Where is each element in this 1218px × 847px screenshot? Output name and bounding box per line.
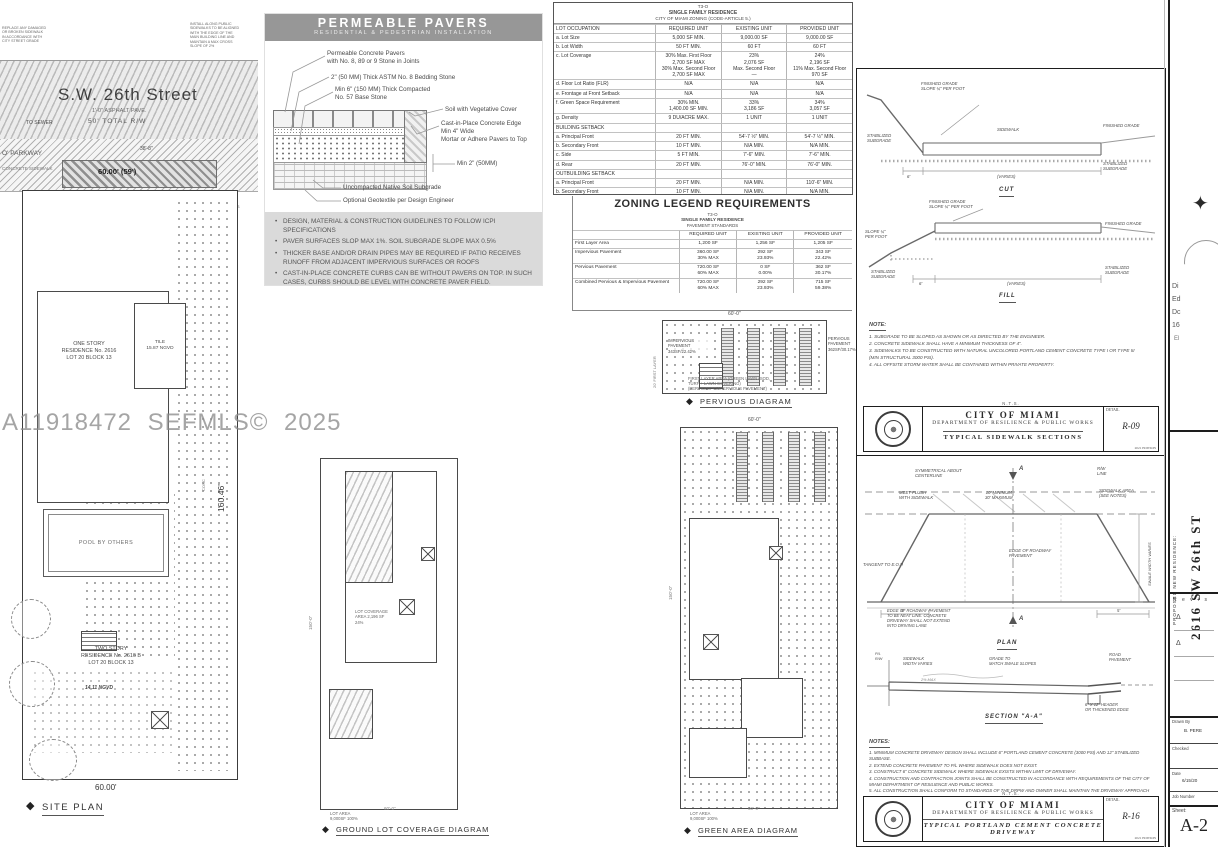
revision-triangle-icon: Δ — [1176, 614, 1181, 623]
revision-rule — [1174, 680, 1214, 681]
pavers-bullet: CAST-IN-PLACE CONCRETE CURBS CAN BE WITH… — [275, 270, 532, 287]
section-pct: 2% MAX — [921, 678, 936, 683]
footprint-ext — [741, 678, 803, 738]
title-block-detail: DETAIL R-16 2021 EDITION — [1103, 797, 1158, 841]
required-cell: N/A — [655, 79, 721, 88]
provided-cell: N/A — [786, 79, 852, 88]
note-item: 2. CONCRETE SIDEWALK SHALL HAVE A MINIMU… — [869, 341, 1153, 348]
row-name: d. Rear — [554, 160, 655, 169]
row-name — [573, 230, 679, 239]
section-sidewalk-width: SIDEWALK WIDTH VARIES — [903, 656, 932, 666]
plan-neat-line-note: EDGE OF ROADWAY PAVEMENT TO BE NEAT LINE… — [887, 608, 950, 628]
existing-cell: 76'-0" MIN. — [721, 160, 787, 169]
required-cell: N/A — [655, 89, 721, 98]
driveway-strip — [62, 160, 217, 188]
dim-38: 38'-8" — [140, 146, 153, 152]
note-item: 3. SIDEWALKS TO BE CONSTRUCTED WITH NATU… — [869, 348, 1153, 362]
existing-cell: 7'-6" MIN. — [721, 150, 787, 159]
pervious-note: FIRST LAYER AREA (GREEN LAWN (SOD, TURF … — [688, 376, 770, 391]
existing-cell — [721, 123, 787, 132]
provided-cell: 362 SF 30.17% — [793, 263, 852, 278]
green-area-diagram — [680, 427, 838, 809]
parkway-label: O' PARKWAY — [2, 150, 42, 158]
cut-finished-grade: FINISHED GRADE — [1103, 123, 1140, 128]
department-name: DEPARTMENT OF RESILIENCE & PUBLIC WORKS — [923, 810, 1103, 816]
row-name: OUTBUILDING SETBACK — [554, 169, 655, 178]
section-pl: P/L R/W — [875, 652, 882, 661]
footprint-small — [689, 728, 747, 778]
title-block-center: CITY OF MIAMI DEPARTMENT OF RESILIENCE &… — [923, 407, 1103, 451]
city-name: CITY OF MIAMI — [923, 800, 1103, 810]
project-street-vertical: 2616 SW 26th ST — [1188, 440, 1204, 640]
architect-seal-icon — [1184, 240, 1218, 284]
footprint-hatch — [345, 471, 393, 583]
provided-cell: 76'-0" MIN. — [786, 160, 852, 169]
sidebar-divider — [1170, 805, 1218, 807]
existing-cell: 292 SF 23.93% — [736, 278, 793, 293]
row-name: Impervious Pavement — [573, 248, 679, 263]
provided-cell: 24% 2,196 SF 11% Max. Second Floor 970 S… — [786, 51, 852, 79]
pervious-bar — [799, 328, 812, 386]
section-header-label: 6" X 12" HEADER OR THICKENED EDGE — [1085, 702, 1129, 712]
detail-name: TYPICAL SIDEWALK SECTIONS — [943, 431, 1082, 441]
plan-symmetrical: SYMMETRICAL ABOUT CENTERLINE — [915, 468, 962, 479]
existing-cell: N/A MIN. — [721, 141, 787, 150]
green-bar — [762, 432, 774, 502]
pervious-bar — [773, 328, 786, 386]
plan-tangent: TANGENT TO E.O.P. — [863, 562, 904, 567]
green-bar — [736, 432, 748, 502]
plan-meet-flush: MEET FLUSH WITH SIDEWALK — [899, 490, 933, 501]
equipment-pad — [151, 711, 169, 729]
existing-cell: 54'-7 ½" MIN. — [721, 132, 787, 141]
mls-watermark: A11918472 SEFMLS© 2025 — [2, 408, 341, 438]
pool-inner: POOL BY OTHERS — [48, 514, 164, 572]
one-story-label: ONE STORY RESIDENCE No. 2616 LOT 20 BLOC… — [43, 341, 135, 361]
existing-cell: N/A MIN. — [721, 187, 787, 195]
plan-edge-roadway: EDGE OF ROADWAY PAVEMENT — [1009, 548, 1051, 559]
row-name: f. Green Space Requirement — [554, 98, 655, 114]
stamp-fragment: Ed — [1172, 296, 1181, 305]
row-name: a. Principal Front — [554, 178, 655, 187]
drawn-by-value: B. PERE — [1184, 728, 1202, 734]
cut-sidewalk-label: SIDEWALK — [997, 127, 1019, 132]
driveway-notes-title: NOTES: — [869, 739, 890, 748]
provided-cell: 343 SF 22.42% — [793, 248, 852, 263]
section-grade-match: GRADE TO MATCH SWALE SLOPES — [989, 656, 1036, 666]
cut-finished-grade-slope: FINISHED GRADE SLOPE ¼" PER FOOT — [921, 81, 965, 92]
bottom-dimension: 60.00' — [95, 783, 117, 793]
to-sewer-label: TO SEWER — [26, 120, 53, 126]
revision-rule — [1174, 630, 1214, 631]
detail-number: R-16 — [1104, 811, 1158, 821]
required-cell: 1,200 SF — [679, 239, 736, 248]
edition-label: 2021 EDITION — [1135, 836, 1156, 840]
row-name: Combined Pervious & Impervious Pavement — [573, 278, 679, 293]
detail-label: DETAIL — [1106, 798, 1119, 802]
miami-seal-icon — [875, 411, 911, 447]
cut-stab-sub-right: STABILIZED SUBGRADE — [1103, 161, 1127, 172]
required-cell: 50 FT MIN. — [655, 42, 721, 51]
cut-stabilized-subgrade: STABILIZED SUBGRADE — [867, 133, 891, 144]
fill-finished-grade: FINISHED GRADE — [1105, 221, 1142, 226]
zoning-title1: T3-O — [554, 3, 852, 10]
existing-cell: N/A — [721, 89, 787, 98]
note-item: 1. MINIMUM CONCRETE DRIVEWAY DESIGN SHAL… — [869, 750, 1155, 763]
plan-a-bottom: A — [1019, 616, 1023, 624]
provided-cell: 715 SF 59.38% — [793, 278, 852, 293]
fill-slope-left: SLOPE ¼" PER FOOT — [865, 229, 887, 240]
two-story-label: TWO STORY RESIDENCE No. 2616 B LOT 20 BL… — [59, 646, 163, 666]
required-cell: REQUIRED UNIT — [655, 24, 721, 33]
revision-rule — [1174, 656, 1214, 657]
row-name: a. Lot Size — [554, 33, 655, 42]
city-seal — [864, 407, 923, 451]
siteplan-note-right: INSTALL ALONG PUBLIC SIDEWALKS TO BE ALI… — [190, 22, 256, 49]
miami-seal-icon — [875, 801, 911, 837]
pervious-diagram-title: PERVIOUS DIAGRAM — [700, 397, 792, 408]
row-name: a. Principal Front — [554, 132, 655, 141]
first-layer-dim: 20' FIRST LAYER — [652, 328, 657, 388]
green-dim-side: 150'-0" — [668, 560, 674, 600]
row-name: BUILDING SETBACK — [554, 123, 655, 132]
ground-lot-diagram: LOT COVERAGE AREA 2,196 SF 24% — [320, 458, 458, 810]
ground-diagram-title: GROUND LOT COVERAGE DIAGRAM — [336, 825, 489, 836]
tree-canopy — [29, 739, 77, 781]
sidewalk-notes-title: NOTE: — [869, 322, 886, 331]
detail-label: DETAIL — [1106, 408, 1119, 412]
pavers-panel: PERMEABLE PAVERS RESIDENTIAL & PEDESTRIA… — [265, 14, 542, 285]
sidewalk-label: CONCRETE SIDEWALK — [2, 166, 53, 172]
row-name: LOT OCCUPATION — [554, 24, 655, 33]
row-name: c. Side — [554, 150, 655, 159]
ngvd-label: 14.11 NGVD — [85, 685, 113, 691]
pavers-bullet: DESIGN, MATERIAL & CONSTRUCTION GUIDELIN… — [275, 218, 532, 235]
plan-rw-line: R/W LINE — [1097, 466, 1107, 477]
row-name: e. Frontage at Front Setback — [554, 89, 655, 98]
required-cell: 360.00 SF 30% MAX — [679, 248, 736, 263]
existing-cell: 1 UNIT — [721, 113, 787, 122]
detail-name: TYPICAL PORTLAND CEMENT CONCRETE DRIVEWA… — [923, 819, 1103, 836]
required-cell — [655, 123, 721, 132]
required-cell: 20 FT MIN. — [655, 160, 721, 169]
note-item: 1. SUBGRADE TO BE SLOPED AS SHOWN OR AS … — [869, 334, 1153, 341]
green-dim-bottom: 60'-0" — [748, 806, 760, 812]
fill-stab-sub-right: STABILIZED SUBGRADE — [1105, 265, 1129, 276]
diamond-marker-icon: ◆ — [322, 824, 329, 835]
tile-label: TILE 15.87 NGVD — [146, 340, 173, 352]
diamond-marker-icon: ◆ — [684, 825, 691, 836]
pool-outer: POOL BY OTHERS — [43, 509, 169, 577]
asphalt-label: 1'-0" ASPHALT PAVE. — [92, 108, 147, 115]
row-name: d. Floor Lot Ratio (FLR) — [554, 79, 655, 88]
legend-title: ZONING LEGEND REQUIREMENTS — [573, 196, 852, 212]
tree-canopy — [11, 599, 51, 639]
note-item: 4. ALL OFFSITE STORM WATER SHALL BE CONT… — [869, 362, 1153, 369]
green-dim-top: 60'-0" — [748, 417, 761, 423]
zoning-legend-table: ZONING LEGEND REQUIREMENTS T3-O SINGLE F… — [572, 196, 852, 311]
stamp-fragment: El — [1174, 336, 1179, 344]
sidebar-divider — [1170, 768, 1218, 769]
existing-cell: N/A MIN. — [721, 178, 787, 187]
checked-label: Checked — [1172, 746, 1189, 751]
provided-cell: 54'-7 ½" MIN. — [786, 132, 852, 141]
required-cell: 30% Max. First Floor 2,700 SF MAX 30% Ma… — [655, 51, 721, 79]
pavers-bullet: PAVER SURFACES SLOP MAX 1%. SOIL SUBGRAD… — [275, 238, 532, 247]
existing-cell: EXISTING UNIT — [736, 230, 793, 239]
sheet-border-outer — [1164, 0, 1165, 847]
row-name: c. Lot Coverage — [554, 51, 655, 79]
provided-cell: N/A MIN. — [786, 141, 852, 150]
blueprint-page: REPLACE ANY DAMAGED OR BROKEN SIDEWALK I… — [0, 0, 1218, 847]
section-road-pavement: ROAD PAVEMENT — [1109, 652, 1131, 662]
provided-cell: N/A — [786, 89, 852, 98]
sidebar-divider — [1170, 791, 1218, 792]
pavers-leader-lines — [265, 14, 542, 214]
footprint-window — [421, 547, 435, 561]
city-name: CITY OF MIAMI — [923, 410, 1103, 420]
title-block: CITY OF MIAMI DEPARTMENT OF RESILIENCE &… — [863, 406, 1159, 452]
conc-label: CONC — [201, 471, 206, 491]
green-bar — [814, 432, 826, 502]
provided-cell: 60 FT — [786, 42, 852, 51]
zoning-grid: LOT OCCUPATION REQUIRED UNIT EXISTING UN… — [554, 24, 852, 195]
green-bar — [788, 432, 800, 502]
drive-dim: 60.00' (59') — [98, 167, 136, 176]
plan-min-max: 10' MINIMUM 30' MAXIMUM — [985, 490, 1013, 501]
provided-cell: PROVIDED UNIT — [793, 230, 852, 239]
required-cell: 20 FT MIN. — [655, 132, 721, 141]
tree-canopy — [9, 661, 55, 707]
fill-finished-grade-slope: FINISHED GRADE SLOPE ¼" PER FOOT — [929, 199, 973, 210]
sidewalk-sections-sheet: FINISHED GRADE SLOPE ¼" PER FOOT STABILI… — [856, 68, 1166, 457]
required-cell — [655, 169, 721, 178]
legend-grid: REQUIRED UNIT EXISTING UNIT PROVIDED UNI… — [573, 230, 852, 293]
title-block: CITY OF MIAMI DEPARTMENT OF RESILIENCE &… — [863, 796, 1159, 842]
cut-dim-6: 6' — [907, 174, 910, 179]
provided-cell: N/A MIN. — [786, 187, 852, 195]
total-rw-label: 50' TOTAL R/W — [88, 118, 146, 126]
drawn-by-label: Drawn By — [1172, 719, 1190, 724]
site-plan-title: SITE PLAN — [42, 802, 104, 816]
existing-cell: N/A — [721, 79, 787, 88]
required-cell: 30% MIN. 1,400.00 SF MIN. — [655, 98, 721, 114]
pool-label: POOL BY OTHERS — [79, 540, 133, 547]
lot-boundary: ONE STORY RESIDENCE No. 2616 LOT 20 BLOC… — [22, 190, 238, 780]
title-block-center: CITY OF MIAMI DEPARTMENT OF RESILIENCE &… — [923, 797, 1103, 841]
provided-cell — [786, 123, 852, 132]
pervious-dim-top: 60'-0" — [728, 311, 741, 317]
stamp-fragment: Di — [1172, 283, 1179, 292]
title-block-detail: DETAIL R-09 2021 EDITION — [1103, 407, 1158, 451]
row-name: Pervious Pavement — [573, 263, 679, 278]
sidebar-divider — [1170, 743, 1218, 744]
city-seal — [864, 797, 923, 841]
zoning-table: T3-O SINGLE FAMILY RESIDENCE CITY OF MIA… — [553, 2, 853, 195]
provided-cell: 9,000.00 SF — [786, 33, 852, 42]
section-title: SECTION "A-A" — [985, 714, 1043, 724]
north-compass-icon: ✦ — [1192, 192, 1209, 217]
required-cell: 10 FT MIN. — [655, 187, 721, 195]
stamp-fragment: Dc — [1172, 309, 1181, 318]
row-name: b. Secondary Front — [554, 187, 655, 195]
diamond-marker-icon: ◆ — [686, 396, 693, 407]
provided-cell: 34% 3,057 SF — [786, 98, 852, 114]
coverage-label: LOT COVERAGE AREA 2,196 SF 24% — [355, 609, 415, 625]
provided-cell: 110'-6" MIN. — [786, 178, 852, 187]
date-value: 6/15/20 — [1182, 778, 1197, 784]
row-name: b. Secondary Front — [554, 141, 655, 150]
existing-cell: 23% 2,076 SF Max. Second Floor — — [721, 51, 787, 79]
provided-cell: 1 UNIT — [786, 113, 852, 122]
revisions-header: R e v i s — [1173, 597, 1209, 603]
required-cell: 9 DU/ACRE MAX. — [655, 113, 721, 122]
sidewalk-notes: 1. SUBGRADE TO BE SLOPED AS SHOWN OR AS … — [869, 334, 1153, 368]
existing-cell — [721, 169, 787, 178]
row-name: First Layer Area — [573, 239, 679, 248]
ground-lot-area: LOT AREA 9,000SF 100% — [330, 811, 358, 822]
ground-dim-bottom: 60'-0" — [384, 806, 396, 812]
sidebar-divider — [1170, 592, 1218, 594]
plan-swale-width: SWALE WIDTH VARIES — [1147, 526, 1152, 586]
tile-area: TILE 15.87 NGVD — [134, 303, 186, 389]
fill-stab-sub-left: STABILIZED SUBGRADE — [871, 269, 895, 280]
provided-cell — [786, 169, 852, 178]
cut-section-drawing — [863, 77, 1157, 189]
sidebar-divider — [1170, 430, 1218, 432]
impervious-callout: IMPERVIOUS PAVEMENT 343SF/22.42% — [668, 338, 712, 354]
provided-cell: 7'-6" MIN. — [786, 150, 852, 159]
pavers-bullet: THICKER BASE AND/OR DRAIN PIPES MAY BE R… — [275, 250, 532, 267]
siteplan-note-left: REPLACE ANY DAMAGED OR BROKEN SIDEWALK I… — [2, 26, 74, 44]
required-cell: 720.00 SF 60% MAX — [679, 263, 736, 278]
outbuilding-hatch — [329, 689, 373, 739]
existing-cell: 1,256 SF — [736, 239, 793, 248]
required-cell: 10 FT MIN. — [655, 141, 721, 150]
required-cell: 20 FT MIN. — [655, 178, 721, 187]
footprint-window — [703, 634, 719, 650]
existing-cell: 33% 3,186 SF — [721, 98, 787, 114]
existing-cell: 0 SF 0.00% — [736, 263, 793, 278]
street-name: S.W. 26th Street — [58, 84, 198, 105]
job-number-label: Job Number — [1172, 794, 1195, 799]
plan-dim-5-left: 5' — [901, 608, 904, 613]
existing-cell: 292 SF 23.93% — [736, 248, 793, 263]
department-name: DEPARTMENT OF RESILIENCE & PUBLIC WORKS — [923, 420, 1103, 426]
footprint-window — [769, 546, 783, 560]
driveway-sheet: SYMMETRICAL ABOUT CENTERLINE A R/W LINE … — [856, 455, 1166, 847]
pavers-footer: DESIGN, MATERIAL & CONSTRUCTION GUIDELIN… — [265, 212, 542, 285]
north-diamond-icon: ◆ — [26, 800, 34, 814]
provided-cell: PROVIDED UNIT — [786, 24, 852, 33]
footprint-white — [689, 518, 779, 680]
green-lot-area: LOT AREA 9,000SF 100% — [690, 811, 718, 822]
stamp-fragment: 16 — [1172, 322, 1180, 331]
required-cell: 5 FT MIN. — [655, 150, 721, 159]
plan-sidewalk-area: SIDEWALK AREA (SEE NOTES) — [1099, 488, 1134, 499]
required-cell: REQUIRED UNIT — [679, 230, 736, 239]
existing-cell: 60 FT — [721, 42, 787, 51]
plan-a-top: A — [1019, 466, 1023, 474]
fill-dim-varies: (VARIES) — [1007, 281, 1025, 286]
zoning-title3: CITY OF MIAMI ZONING (CODE-ARTICLE 5.) — [554, 16, 852, 24]
required-cell: 720.00 SF 60% MAX — [679, 278, 736, 293]
fill-dim-6: 6' — [919, 281, 922, 286]
green-diagram-title: GREEN AREA DIAGRAM — [698, 826, 798, 837]
sidebar-divider — [1170, 716, 1218, 718]
date-label: Date — [1172, 771, 1181, 776]
row-name: b. Lot Width — [554, 42, 655, 51]
note-item: 4. CONSTRUCTION AND CONTRACTION JOINTS S… — [869, 776, 1155, 789]
existing-cell: 9,000.00 SF — [721, 33, 787, 42]
required-cell: 5,000 SF MIN. — [655, 33, 721, 42]
revision-triangle-icon: Δ — [1176, 640, 1181, 649]
provided-cell: 1,205 SF — [793, 239, 852, 248]
titleblock-sidebar: ✦ Di Ed Dc 16 El PROPOSED NEW RESIDENCE:… — [1170, 0, 1218, 847]
row-name: g. Density — [554, 113, 655, 122]
plan-title: PLAN — [997, 640, 1017, 650]
legend-sub3: PAVEMENT STANDARDS — [573, 223, 852, 231]
detail-number: R-09 — [1104, 421, 1158, 431]
edition-label: 2021 EDITION — [1135, 446, 1156, 450]
ground-dim-side: 150'-0" — [308, 590, 314, 630]
sheet-number: A-2 — [1180, 814, 1208, 837]
cut-title: CUT — [999, 187, 1014, 197]
fill-title: FILL — [999, 293, 1016, 303]
plan-dim-5-right: 5' — [1117, 608, 1120, 613]
cut-dim-varies: (VARIES) — [997, 174, 1015, 179]
side-dimension: 160.46' — [216, 452, 227, 512]
existing-cell: EXISTING UNIT — [721, 24, 787, 33]
